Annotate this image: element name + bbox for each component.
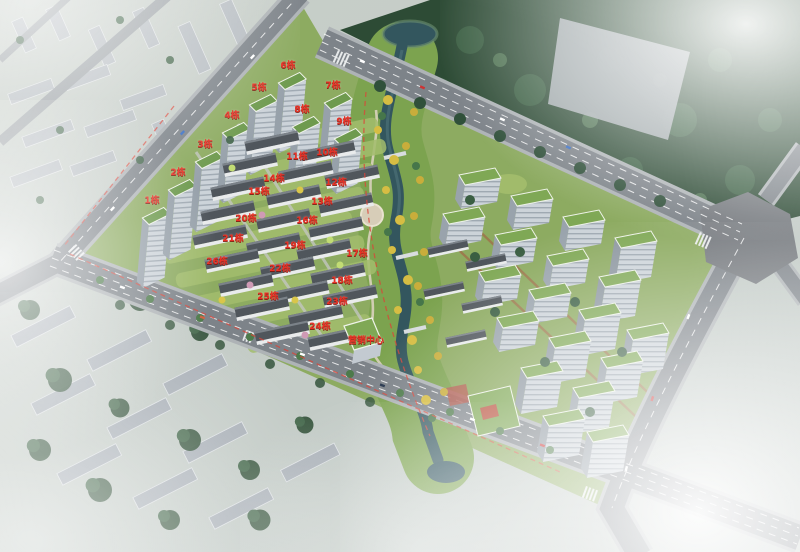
aerial-site-rendering: 1栋2栋3栋4栋5栋6栋7栋8栋9栋10栋11栋12栋13栋14栋15栋16栋1… [0, 0, 800, 552]
lower-pond [427, 461, 465, 483]
rendering-canvas [0, 0, 800, 552]
